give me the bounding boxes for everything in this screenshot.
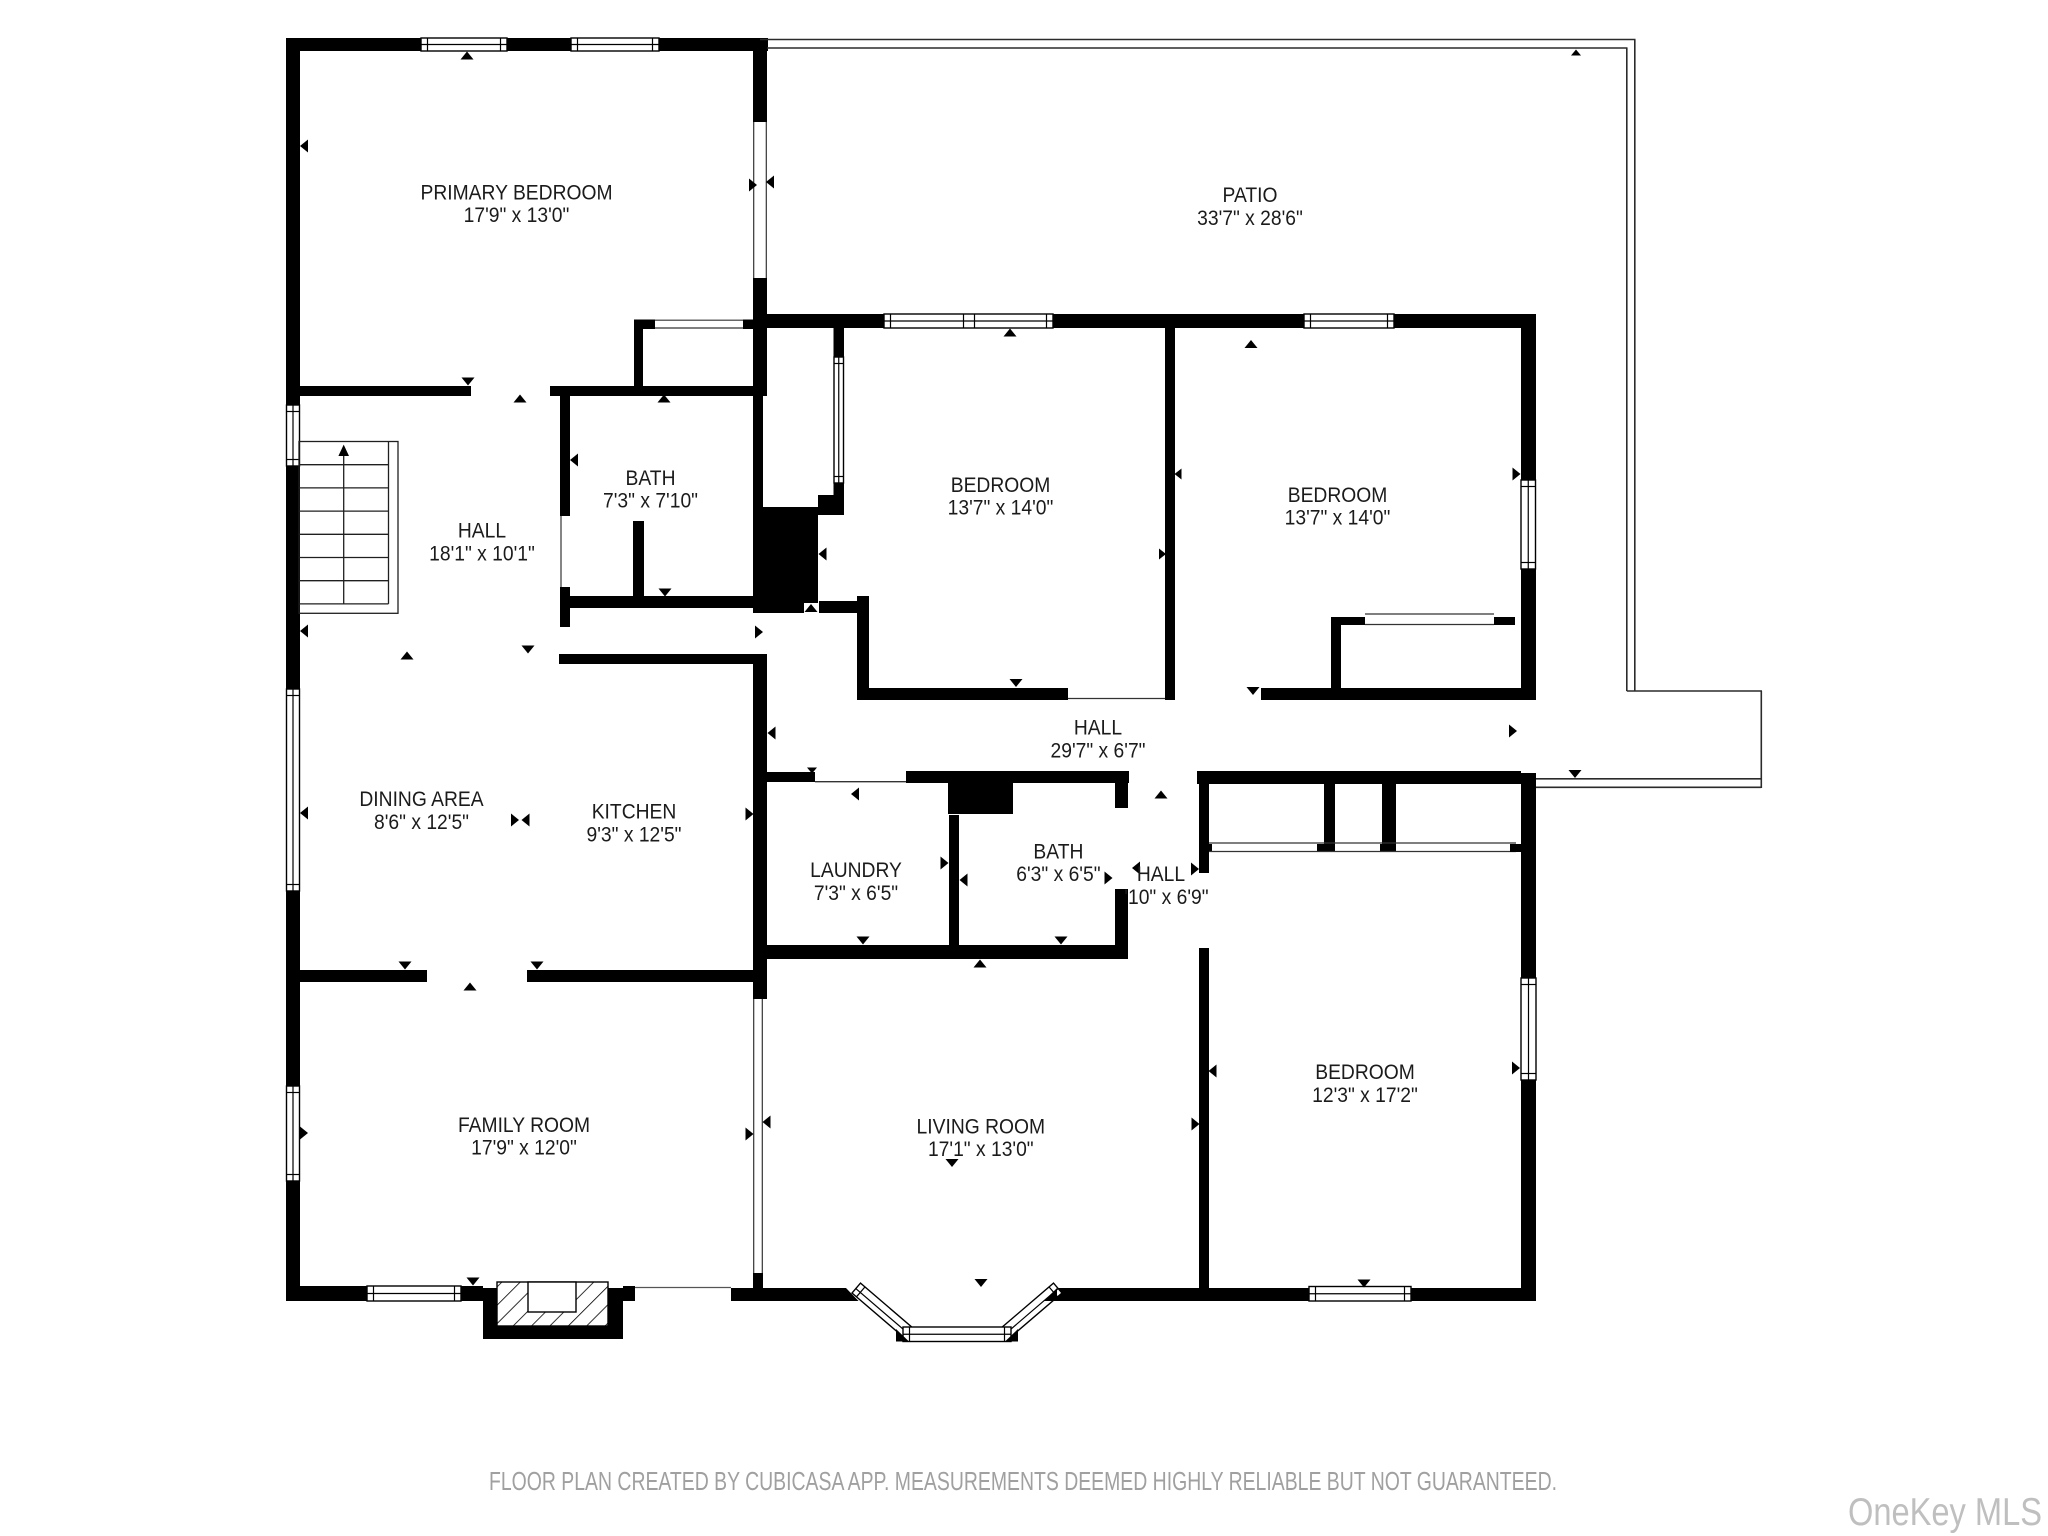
svg-text:33'7" x 28'6": 33'7" x 28'6" bbox=[1197, 207, 1303, 230]
svg-text:BATH: BATH bbox=[626, 467, 676, 490]
svg-text:HALL: HALL bbox=[1074, 717, 1122, 740]
svg-text:LAUNDRY: LAUNDRY bbox=[810, 859, 902, 882]
svg-text:8'6" x 12'5": 8'6" x 12'5" bbox=[374, 811, 469, 834]
svg-text:17'9" x 12'0": 17'9" x 12'0" bbox=[471, 1137, 577, 1160]
svg-text:LIVING ROOM: LIVING ROOM bbox=[917, 1116, 1046, 1139]
svg-text:OneKey MLS: OneKey MLS bbox=[1848, 1491, 2042, 1534]
svg-text:DINING AREA: DINING AREA bbox=[359, 788, 484, 811]
svg-text:17'9" x 13'0": 17'9" x 13'0" bbox=[464, 204, 570, 227]
svg-text:HALL: HALL bbox=[1137, 863, 1185, 886]
svg-text:BEDROOM: BEDROOM bbox=[951, 474, 1051, 497]
svg-text:PRIMARY BEDROOM: PRIMARY BEDROOM bbox=[420, 182, 612, 205]
svg-text:'10" x 6'9": '10" x 6'9" bbox=[1124, 886, 1208, 909]
svg-text:KITCHEN: KITCHEN bbox=[592, 801, 677, 824]
svg-text:12'3" x 17'2": 12'3" x 17'2" bbox=[1312, 1084, 1418, 1107]
svg-text:PATIO: PATIO bbox=[1223, 184, 1278, 207]
svg-text:BEDROOM: BEDROOM bbox=[1315, 1061, 1415, 1084]
svg-text:18'1" x 10'1": 18'1" x 10'1" bbox=[429, 543, 535, 566]
svg-text:BATH: BATH bbox=[1033, 841, 1083, 864]
svg-text:7'3" x 6'5": 7'3" x 6'5" bbox=[814, 882, 898, 905]
svg-text:6'3" x 6'5": 6'3" x 6'5" bbox=[1016, 863, 1100, 886]
svg-text:17'1" x 13'0": 17'1" x 13'0" bbox=[928, 1138, 1034, 1161]
svg-text:29'7" x 6'7": 29'7" x 6'7" bbox=[1051, 740, 1146, 763]
svg-text:9'3" x 12'5": 9'3" x 12'5" bbox=[587, 824, 682, 847]
svg-text:13'7" x 14'0": 13'7" x 14'0" bbox=[948, 497, 1054, 520]
svg-text:FAMILY ROOM: FAMILY ROOM bbox=[458, 1114, 590, 1137]
svg-text:BEDROOM: BEDROOM bbox=[1288, 484, 1388, 507]
svg-text:FLOOR PLAN CREATED BY CUBICASA: FLOOR PLAN CREATED BY CUBICASA APP. MEAS… bbox=[489, 1466, 1557, 1496]
svg-text:HALL: HALL bbox=[458, 520, 506, 543]
svg-text:13'7" x 14'0": 13'7" x 14'0" bbox=[1285, 507, 1391, 530]
svg-text:7'3" x 7'10": 7'3" x 7'10" bbox=[603, 490, 698, 513]
